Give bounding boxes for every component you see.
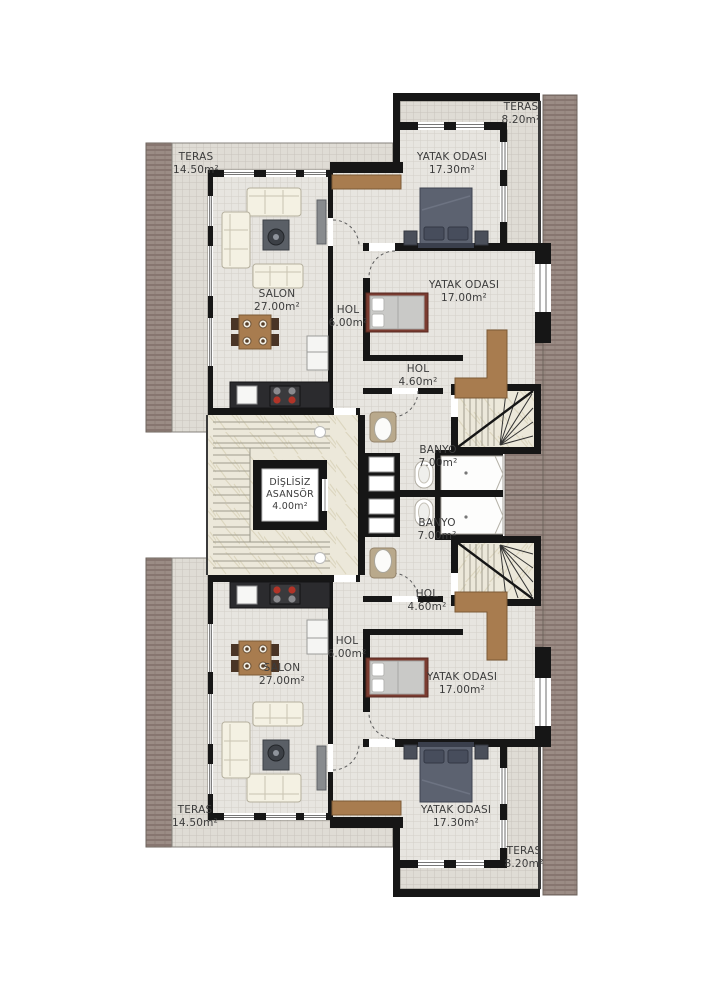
sofa bbox=[222, 212, 250, 268]
ceiling-light bbox=[315, 553, 326, 564]
toilet bbox=[370, 412, 396, 442]
nightstand bbox=[475, 231, 488, 245]
elevator-shaft bbox=[253, 460, 328, 530]
floor-plan-canvas bbox=[0, 0, 707, 1000]
fridge bbox=[307, 336, 328, 370]
terrace-parapet bbox=[538, 101, 541, 250]
ceiling-light bbox=[315, 427, 326, 438]
sofa bbox=[247, 188, 301, 216]
unit-staircase bbox=[458, 391, 534, 447]
shower bbox=[441, 456, 503, 495]
roof-strip-left bbox=[146, 143, 172, 432]
duct-shaft bbox=[363, 453, 400, 537]
wardrobe bbox=[332, 175, 401, 189]
floor-plan-image: TERAS 8.20m² TERAS 14.50m² YATAK ODASI 1… bbox=[0, 0, 707, 1000]
single-bed bbox=[366, 293, 428, 332]
sofa bbox=[253, 264, 303, 288]
nightstand bbox=[404, 231, 417, 245]
banyo-divider-wall bbox=[400, 490, 503, 497]
sideboard bbox=[317, 200, 326, 244]
kitchen-sink bbox=[237, 386, 257, 404]
double-bed bbox=[418, 188, 474, 248]
